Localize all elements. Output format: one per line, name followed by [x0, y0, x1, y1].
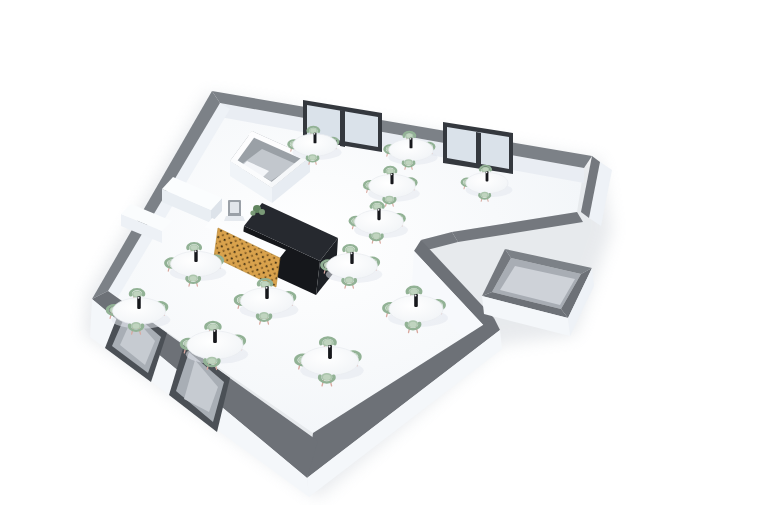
bottle: [137, 296, 141, 309]
bottle: [486, 171, 489, 181]
bottle: [410, 138, 413, 149]
bottle: [350, 252, 353, 264]
bottle: [414, 294, 418, 307]
floorplan-3d-render: [0, 0, 765, 505]
floorplan-canvas: [0, 0, 765, 505]
bottle: [377, 209, 380, 221]
bottle: [314, 133, 317, 144]
bottle: [213, 329, 217, 343]
bottle: [194, 250, 197, 262]
bottle: [265, 286, 269, 299]
bottle: [390, 173, 393, 184]
bottle: [328, 345, 332, 359]
